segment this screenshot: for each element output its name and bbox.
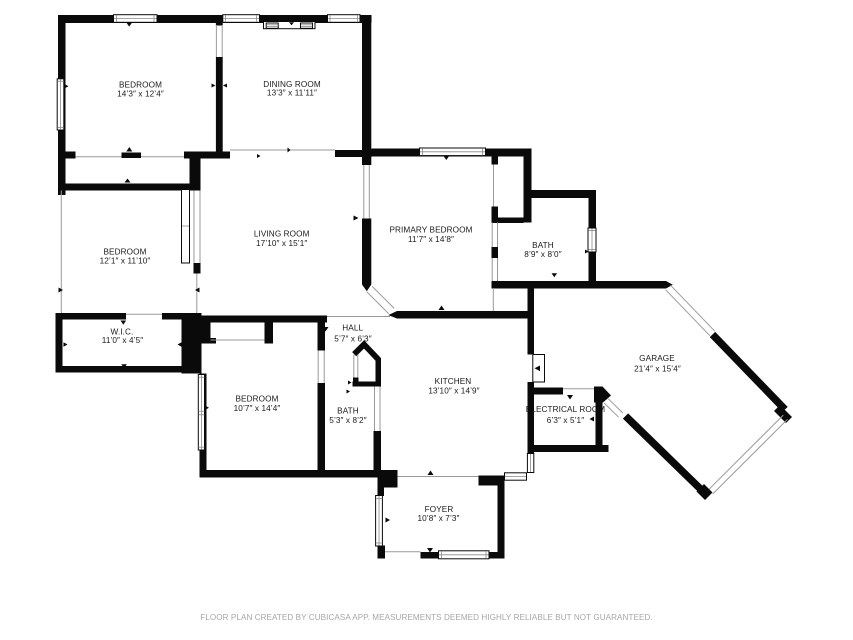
svg-text:BEDROOM: BEDROOM [119, 81, 162, 90]
svg-text:PRIMARY BEDROOM: PRIMARY BEDROOM [389, 225, 472, 234]
svg-text:BEDROOM: BEDROOM [235, 394, 278, 403]
svg-text:FLOOR PLAN CREATED BY CUBICASA: FLOOR PLAN CREATED BY CUBICASA APP. MEAS… [200, 613, 652, 622]
svg-text:5’3″ x 8’2″: 5’3″ x 8’2″ [329, 416, 366, 425]
svg-text:13’10″ x 14’9″: 13’10″ x 14’9″ [428, 387, 479, 396]
svg-text:FOYER: FOYER [425, 505, 454, 514]
svg-text:12’1″ x 11’10″: 12’1″ x 11’10″ [100, 257, 151, 266]
svg-text:GARAGE: GARAGE [639, 354, 675, 363]
svg-text:13’3″ x 11’11″: 13’3″ x 11’11″ [267, 89, 317, 98]
svg-text:ELECTRICAL ROOM: ELECTRICAL ROOM [526, 405, 606, 414]
svg-text:14’3″ x 12’4″: 14’3″ x 12’4″ [117, 89, 164, 98]
svg-text:11’0″ x 4’5″: 11’0″ x 4’5″ [102, 336, 143, 345]
svg-text:HALL: HALL [342, 324, 363, 333]
svg-text:17’10″ x 15’1″: 17’10″ x 15’1″ [256, 239, 307, 248]
svg-text:KITCHEN: KITCHEN [435, 377, 472, 386]
svg-text:6’3″ x 5’1″: 6’3″ x 5’1″ [547, 416, 584, 425]
svg-text:10’7″ x 14’4″: 10’7″ x 14’4″ [234, 404, 281, 413]
svg-text:DINING ROOM: DINING ROOM [263, 80, 321, 89]
svg-text:BATH: BATH [532, 241, 554, 250]
svg-text:10’8″ x 7’3″: 10’8″ x 7’3″ [417, 514, 459, 523]
svg-text:11’7″ x 14’8″: 11’7″ x 14’8″ [408, 235, 454, 244]
svg-text:LIVING ROOM: LIVING ROOM [254, 229, 310, 238]
svg-text:8’9″ x 8’0″: 8’9″ x 8’0″ [524, 250, 561, 259]
svg-text:BEDROOM: BEDROOM [103, 247, 146, 256]
svg-text:5’7″ x 6’3″: 5’7″ x 6’3″ [334, 335, 371, 344]
svg-text:BATH: BATH [337, 407, 359, 416]
svg-text:21’4″ x 15’4″: 21’4″ x 15’4″ [634, 364, 681, 373]
